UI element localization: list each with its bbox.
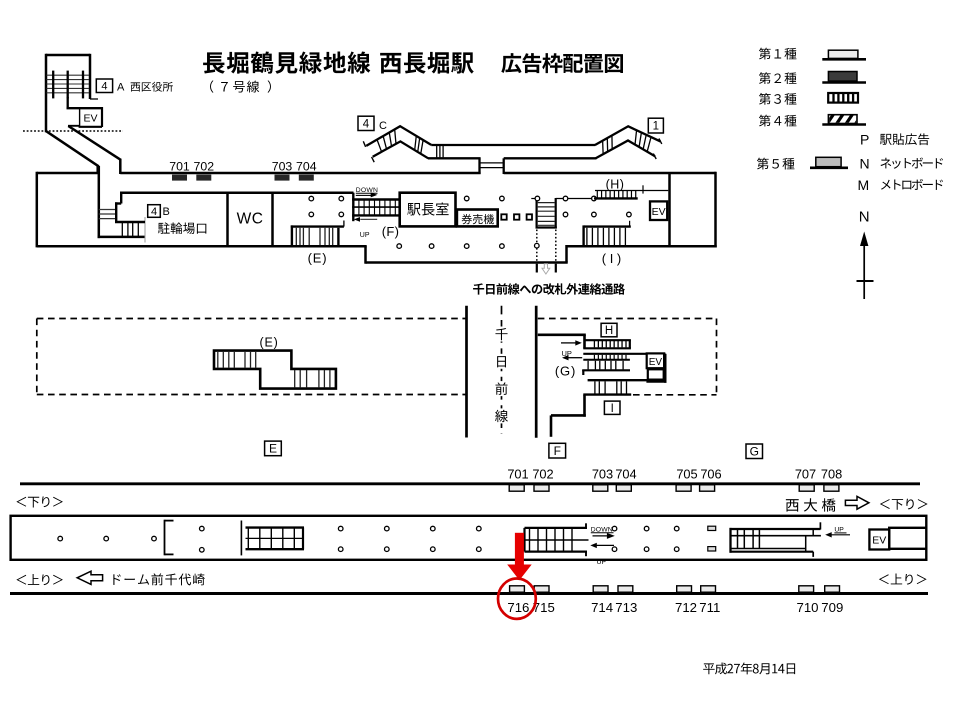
svg-text:UP: UP (597, 559, 607, 566)
svg-text:(F): (F) (382, 224, 400, 239)
svg-text:716: 716 (507, 600, 529, 615)
svg-text:708: 708 (821, 466, 842, 481)
svg-text:( I ): ( I ) (602, 251, 622, 266)
svg-text:P: P (860, 132, 869, 148)
svg-text:701: 701 (507, 466, 528, 481)
svg-text:707: 707 (795, 466, 816, 481)
svg-text:704: 704 (296, 159, 317, 173)
svg-text:703: 703 (592, 466, 613, 481)
svg-text:702: 702 (194, 159, 215, 173)
svg-text:710: 710 (796, 600, 818, 615)
svg-text:B: B (163, 206, 170, 218)
svg-text:EV: EV (649, 357, 663, 368)
svg-text:UP: UP (360, 232, 370, 239)
svg-text:E: E (269, 442, 277, 456)
svg-text:EV: EV (872, 534, 886, 546)
svg-text:1: 1 (653, 121, 659, 133)
svg-text:705: 705 (676, 466, 697, 481)
svg-text:C: C (379, 120, 387, 132)
svg-text:4: 4 (151, 206, 157, 218)
svg-text:714: 714 (591, 600, 613, 615)
svg-text:M: M (858, 177, 870, 193)
svg-text:711: 711 (699, 600, 720, 615)
svg-text:EV: EV (83, 113, 97, 125)
svg-text:F: F (554, 444, 561, 458)
svg-text:702: 702 (532, 466, 553, 481)
svg-text:(E): (E) (260, 335, 279, 349)
svg-text:G: G (750, 445, 759, 459)
svg-text:713: 713 (615, 600, 637, 615)
svg-text:701: 701 (169, 159, 190, 173)
svg-text:703: 703 (272, 159, 293, 173)
svg-text:A: A (117, 82, 125, 94)
svg-text:(G): (G) (555, 363, 576, 378)
svg-text:EV: EV (652, 206, 666, 218)
svg-text:WC: WC (237, 211, 264, 228)
svg-text:H: H (605, 325, 613, 337)
svg-text:4: 4 (101, 81, 107, 93)
svg-text:706: 706 (700, 466, 721, 481)
svg-text:(E): (E) (308, 251, 328, 266)
svg-text:UP: UP (562, 349, 572, 358)
svg-text:712: 712 (675, 600, 697, 615)
svg-text:I: I (611, 403, 614, 415)
svg-text:N: N (860, 155, 870, 171)
svg-text:4: 4 (363, 118, 370, 130)
svg-text:709: 709 (821, 600, 843, 615)
svg-text:N: N (859, 209, 870, 226)
svg-text:(H): (H) (606, 177, 625, 191)
svg-text:704: 704 (615, 466, 636, 481)
